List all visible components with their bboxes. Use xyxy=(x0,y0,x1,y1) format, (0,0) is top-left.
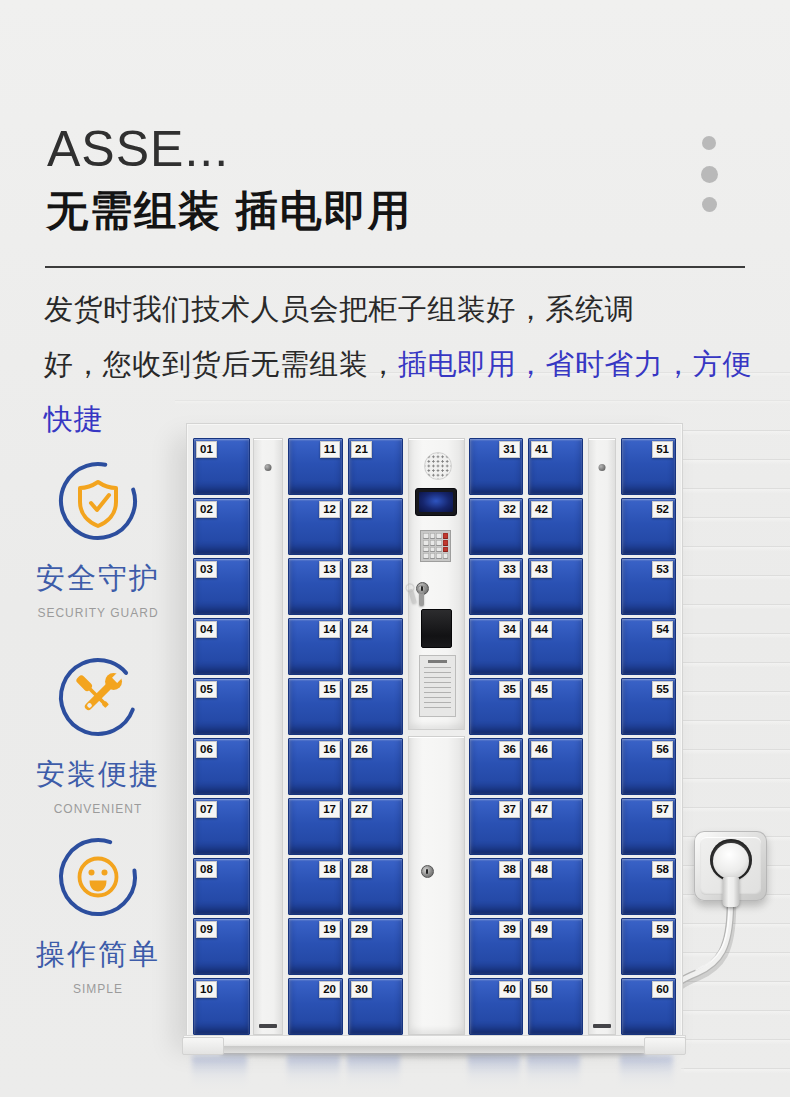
cabinet-foot xyxy=(644,1037,686,1055)
locker-door: 60 xyxy=(621,978,676,1035)
scanner-window xyxy=(421,609,452,648)
locker-door: 21 xyxy=(348,438,403,495)
door-number-label: 47 xyxy=(531,801,552,818)
feature-title: 操作简单 xyxy=(13,935,183,975)
wall-groove-line xyxy=(681,1010,790,1015)
locker-door: 06 xyxy=(193,738,250,795)
screw-icon xyxy=(599,464,606,471)
control-panel xyxy=(408,438,465,730)
door-number-label: 26 xyxy=(351,741,372,758)
wall-groove-line xyxy=(681,546,790,551)
door-number-label: 24 xyxy=(351,621,372,638)
reflection-strip xyxy=(347,1056,400,1092)
door-number-label: 02 xyxy=(196,501,217,518)
door-number-label: 03 xyxy=(196,561,217,578)
locker-door: 26 xyxy=(348,738,403,795)
door-number-label: 57 xyxy=(652,801,673,818)
wall-groove-line xyxy=(681,691,790,696)
locker-door: 20 xyxy=(288,978,343,1035)
keypad-key xyxy=(423,553,429,559)
door-number-label: 36 xyxy=(499,741,520,758)
locker-door: 09 xyxy=(193,918,250,975)
wall-groove-line xyxy=(681,778,790,783)
locker-door: 01 xyxy=(193,438,250,495)
door-number-label: 19 xyxy=(319,921,340,938)
sticker-text-lines xyxy=(424,667,451,712)
door-number-label: 01 xyxy=(196,441,217,458)
panel-slot xyxy=(259,1024,277,1028)
keypad xyxy=(420,530,451,562)
locker-door: 27 xyxy=(348,798,403,855)
door-number-label: 13 xyxy=(319,561,340,578)
locker-door: 52 xyxy=(621,498,676,555)
locker-door: 15 xyxy=(288,678,343,735)
door-number-label: 59 xyxy=(652,921,673,938)
feature-title: 安全守护 xyxy=(13,559,183,599)
door-number-label: 56 xyxy=(652,741,673,758)
locker-door: 32 xyxy=(469,498,523,555)
lower-service-door xyxy=(408,736,465,1035)
locker-door: 57 xyxy=(621,798,676,855)
door-number-label: 12 xyxy=(319,501,340,518)
door-number-label: 46 xyxy=(531,741,552,758)
keypad-key xyxy=(423,547,429,553)
speaker-grille-icon xyxy=(424,452,452,480)
decor-dot xyxy=(702,136,716,150)
power-socket xyxy=(694,831,767,901)
locker-door: 28 xyxy=(348,858,403,915)
keypad-key xyxy=(430,547,436,553)
locker-door: 47 xyxy=(528,798,583,855)
door-number-label: 41 xyxy=(531,441,552,458)
wall-groove-line xyxy=(681,604,790,609)
door-number-label: 53 xyxy=(652,561,673,578)
locker-door: 25 xyxy=(348,678,403,735)
locker-door: 43 xyxy=(528,558,583,615)
keypad-key xyxy=(443,553,449,559)
door-number-label: 39 xyxy=(499,921,520,938)
door-number-label: 20 xyxy=(319,981,340,998)
locker-door: 03 xyxy=(193,558,250,615)
door-number-label: 44 xyxy=(531,621,552,638)
locker-door: 08 xyxy=(193,858,250,915)
cabinet-foot xyxy=(182,1037,224,1055)
locker-door: 05 xyxy=(193,678,250,735)
locker-door: 59 xyxy=(621,918,676,975)
door-number-label: 18 xyxy=(319,861,340,878)
locker-door: 50 xyxy=(528,978,583,1035)
door-number-label: 07 xyxy=(196,801,217,818)
keypad-red-key xyxy=(443,540,449,546)
door-number-label: 35 xyxy=(499,681,520,698)
feature-install: 安装便捷 CONVENIENT xyxy=(13,652,183,816)
locker-door: 10 xyxy=(193,978,250,1035)
door-number-label: 06 xyxy=(196,741,217,758)
locker-door: 34 xyxy=(469,618,523,675)
locker-door: 02 xyxy=(193,498,250,555)
door-number-label: 29 xyxy=(351,921,372,938)
door-number-label: 37 xyxy=(499,801,520,818)
door-number-label: 55 xyxy=(652,681,673,698)
door-number-label: 09 xyxy=(196,921,217,938)
door-number-label: 10 xyxy=(196,981,217,998)
door-number-label: 40 xyxy=(499,981,520,998)
door-number-label: 08 xyxy=(196,861,217,878)
locker-door: 14 xyxy=(288,618,343,675)
smiley-face-icon xyxy=(53,832,143,922)
wall-groove-line xyxy=(681,633,790,638)
locker-door: 53 xyxy=(621,558,676,615)
locker-door: 39 xyxy=(469,918,523,975)
locker-door: 04 xyxy=(193,618,250,675)
door-number-label: 52 xyxy=(652,501,673,518)
door-number-label: 22 xyxy=(351,501,372,518)
locker-door: 36 xyxy=(469,738,523,795)
cabinet-side-panel xyxy=(588,438,616,1035)
reflection-strip xyxy=(527,1056,580,1092)
wall-groove-line xyxy=(681,749,790,754)
door-number-label: 38 xyxy=(499,861,520,878)
keypad-key xyxy=(436,553,442,559)
locker-door: 12 xyxy=(288,498,343,555)
door-number-label: 51 xyxy=(652,441,673,458)
locker-door: 55 xyxy=(621,678,676,735)
keypad-key xyxy=(430,540,436,546)
locker-door: 45 xyxy=(528,678,583,735)
keypad-key xyxy=(423,533,429,539)
door-number-label: 43 xyxy=(531,561,552,578)
locker-door: 56 xyxy=(621,738,676,795)
locker-door: 33 xyxy=(469,558,523,615)
reflection-strip xyxy=(192,1056,247,1092)
floor-reflection xyxy=(183,1056,684,1097)
door-number-label: 42 xyxy=(531,501,552,518)
locker-door: 58 xyxy=(621,858,676,915)
locker-door: 24 xyxy=(348,618,403,675)
instruction-sticker xyxy=(419,655,456,717)
locker-door: 18 xyxy=(288,858,343,915)
reflection-strip xyxy=(620,1056,673,1092)
shield-check-icon xyxy=(53,456,143,546)
door-number-label: 49 xyxy=(531,921,552,938)
door-number-label: 32 xyxy=(499,501,520,518)
keypad-key xyxy=(436,547,442,553)
locker-door: 40 xyxy=(469,978,523,1035)
reflection-strip xyxy=(468,1056,520,1092)
door-number-label: 54 xyxy=(652,621,673,638)
door-number-label: 14 xyxy=(319,621,340,638)
locker-door: 30 xyxy=(348,978,403,1035)
door-number-label: 48 xyxy=(531,861,552,878)
wrench-screwdriver-icon xyxy=(53,652,143,742)
decor-dot xyxy=(701,166,718,183)
wall-groove-line xyxy=(681,807,790,812)
feature-title: 安装便捷 xyxy=(13,755,183,795)
locker-door: 44 xyxy=(528,618,583,675)
cabinet-kick-plate xyxy=(221,1046,645,1053)
decor-dot xyxy=(702,197,717,212)
wall-groove-line xyxy=(681,1068,790,1073)
door-number-label: 31 xyxy=(499,441,520,458)
keypad-red-key xyxy=(443,533,449,539)
wall-groove-line xyxy=(681,517,790,522)
door-number-label: 11 xyxy=(320,441,340,458)
reflection-strip xyxy=(287,1056,340,1092)
locker-door: 22 xyxy=(348,498,403,555)
feature-simple: 操作简单 SIMPLE xyxy=(13,832,183,996)
locker-door: 29 xyxy=(348,918,403,975)
divider-line xyxy=(45,266,745,268)
locker-door: 37 xyxy=(469,798,523,855)
door-number-label: 23 xyxy=(351,561,372,578)
door-number-label: 28 xyxy=(351,861,372,878)
door-number-label: 58 xyxy=(652,861,673,878)
feature-subtitle: SECURITY GUARD xyxy=(13,606,183,620)
door-number-label: 17 xyxy=(319,801,340,818)
locker-door: 41 xyxy=(528,438,583,495)
locker-door: 38 xyxy=(469,858,523,915)
feature-security: 安全守护 SECURITY GUARD xyxy=(13,456,183,620)
locker-door: 17 xyxy=(288,798,343,855)
locker-door: 31 xyxy=(469,438,523,495)
panel-slot xyxy=(593,1024,611,1028)
door-number-label: 16 xyxy=(319,741,340,758)
feature-subtitle: SIMPLE xyxy=(13,982,183,996)
door-number-label: 27 xyxy=(351,801,372,818)
keypad-key xyxy=(430,533,436,539)
intro-line2-black: 好，您收到货后无需组装， xyxy=(44,348,398,380)
screw-icon xyxy=(265,464,272,471)
keypad-key xyxy=(436,533,442,539)
keypad-key xyxy=(430,553,436,559)
locker-door: 23 xyxy=(348,558,403,615)
locker-door: 51 xyxy=(621,438,676,495)
plug-neck xyxy=(722,877,739,907)
wall-groove-line xyxy=(681,575,790,580)
door-number-label: 45 xyxy=(531,681,552,698)
door-number-label: 50 xyxy=(531,981,552,998)
wall-groove-line xyxy=(681,459,790,464)
keypad-key xyxy=(423,540,429,546)
wall-groove-line xyxy=(681,488,790,493)
locker-door: 13 xyxy=(288,558,343,615)
feature-subtitle: CONVENIENT xyxy=(13,802,183,816)
door-number-label: 33 xyxy=(499,561,520,578)
door-number-label: 34 xyxy=(499,621,520,638)
locker-door: 35 xyxy=(469,678,523,735)
key-icon xyxy=(419,591,424,606)
door-number-label: 21 xyxy=(351,441,372,458)
door-number-label: 25 xyxy=(351,681,372,698)
door-number-label: 60 xyxy=(652,981,673,998)
wall-groove-line xyxy=(681,720,790,725)
keypad-red-key xyxy=(443,547,449,553)
headline: 无需组装 插电即用 xyxy=(46,183,412,239)
keypad-key xyxy=(436,540,442,546)
intro-line1: 发货时我们技术人员会把柜子组装好，系统调 xyxy=(44,293,634,325)
locker-cabinet: 0102030405060708091011121314151617181920… xyxy=(186,423,683,1037)
cabinet-side-panel xyxy=(253,438,283,1035)
locker-door: 49 xyxy=(528,918,583,975)
door-number-label: 15 xyxy=(319,681,340,698)
locker-door: 11 xyxy=(288,438,343,495)
wall-groove-line xyxy=(681,662,790,667)
page-title-truncated: ASSE... xyxy=(47,120,229,178)
keyhole-icon xyxy=(421,865,434,878)
display-screen xyxy=(415,488,457,516)
locker-door: 48 xyxy=(528,858,583,915)
door-number-label: 05 xyxy=(196,681,217,698)
door-number-label: 30 xyxy=(351,981,372,998)
locker-door: 54 xyxy=(621,618,676,675)
locker-door: 16 xyxy=(288,738,343,795)
locker-door: 19 xyxy=(288,918,343,975)
door-number-label: 04 xyxy=(196,621,217,638)
locker-door: 46 xyxy=(528,738,583,795)
power-plug xyxy=(713,843,749,879)
locker-door: 42 xyxy=(528,498,583,555)
wall-groove-line xyxy=(681,1039,790,1044)
promo-page: ASSE... 无需组装 插电即用 发货时我们技术人员会把柜子组装好，系统调好，… xyxy=(0,0,790,1097)
locker-door: 07 xyxy=(193,798,250,855)
